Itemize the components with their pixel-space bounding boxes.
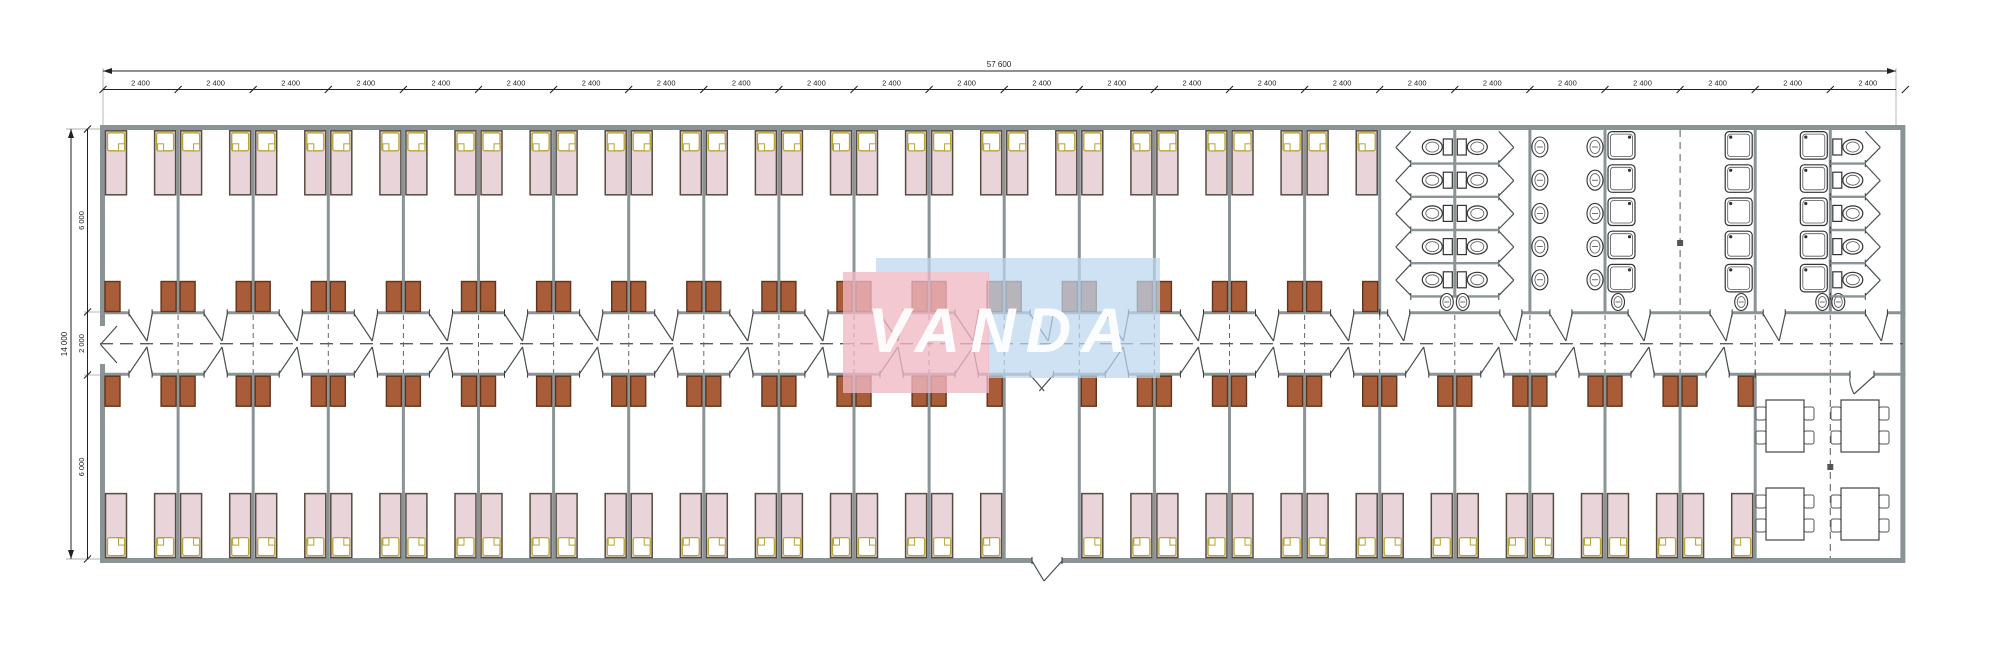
bed <box>1232 494 1253 558</box>
bed <box>406 131 427 195</box>
door-swing <box>147 347 152 374</box>
toilet-icon <box>1833 272 1863 288</box>
pillow-fold <box>1395 538 1401 545</box>
shower-head <box>1729 268 1732 271</box>
door-swing <box>1481 347 1499 374</box>
door-swing <box>147 314 152 341</box>
bed <box>605 131 626 195</box>
chair <box>1804 519 1814 532</box>
bed <box>1232 131 1253 195</box>
bed <box>1732 494 1753 558</box>
door-swing <box>129 347 147 374</box>
dim-label-segment: 2 400 <box>356 79 375 88</box>
door-swing <box>204 347 222 374</box>
shower-icon <box>1725 231 1752 259</box>
chair <box>1879 431 1889 444</box>
door-swing <box>1499 165 1514 181</box>
bed <box>932 494 953 558</box>
pillow-fold <box>794 144 800 151</box>
door-swing <box>279 314 297 341</box>
bed <box>631 494 652 558</box>
pillow-fold <box>1245 144 1251 151</box>
shower-head <box>1729 235 1732 238</box>
pillow-fold <box>308 144 314 151</box>
bed <box>1157 131 1178 195</box>
bed <box>706 494 727 558</box>
pillow-fold <box>909 538 915 545</box>
wardrobe <box>1232 282 1247 312</box>
wardrobe <box>1213 282 1228 312</box>
door-swing <box>1396 147 1411 162</box>
door-swing <box>297 314 302 341</box>
wardrobe <box>105 376 120 406</box>
bed <box>680 494 701 558</box>
bed <box>781 131 802 195</box>
dim-label-segment: 2 400 <box>582 79 601 88</box>
bed <box>1683 494 1704 558</box>
pillow-fold <box>1095 538 1101 545</box>
door-swing <box>1396 198 1411 214</box>
basin-icon <box>1816 294 1829 311</box>
pillow-fold <box>158 144 164 151</box>
pillow-fold <box>719 144 725 151</box>
door-swing <box>823 314 828 341</box>
bed <box>106 131 127 195</box>
shower-tray <box>1800 132 1827 160</box>
door-swing <box>1396 231 1411 247</box>
shower-tray <box>1725 165 1752 193</box>
bed <box>1206 494 1227 558</box>
bed <box>857 494 878 558</box>
wardrobe <box>481 376 496 406</box>
chair <box>1831 431 1841 444</box>
pillow-fold <box>909 144 915 151</box>
basin-icon <box>1587 237 1603 257</box>
wardrobe <box>706 376 721 406</box>
pillow-fold <box>1134 144 1140 151</box>
wc-tank <box>1457 172 1466 188</box>
basin-icon <box>1587 203 1603 223</box>
door-swing <box>1628 314 1644 341</box>
shower-tray <box>1608 264 1635 292</box>
door-swing <box>1706 347 1724 374</box>
pillow-fold <box>269 144 275 151</box>
door-swing <box>1556 347 1574 374</box>
dim-label-segment: 2 400 <box>1408 79 1427 88</box>
door-swing <box>1865 247 1880 262</box>
bed <box>1608 494 1629 558</box>
shower-icon <box>1608 132 1635 160</box>
wc-tank <box>1457 205 1466 221</box>
bed <box>1532 494 1553 558</box>
chair <box>1756 495 1766 508</box>
wc-tank <box>1457 239 1466 255</box>
bed <box>406 494 427 558</box>
shower-head <box>1628 235 1631 238</box>
door-swing <box>505 314 523 341</box>
bed <box>706 131 727 195</box>
wardrobe <box>687 282 702 312</box>
wardrobe <box>1438 376 1453 406</box>
dim-label-segment: 2 400 <box>882 79 901 88</box>
pillow-fold <box>1735 538 1741 545</box>
door-swing <box>222 314 227 341</box>
door-swing <box>1499 280 1514 295</box>
toilet-icon <box>1833 239 1863 255</box>
bed <box>155 494 176 558</box>
shower-head <box>1804 136 1807 139</box>
pillow-fold <box>1621 538 1627 545</box>
door-swing <box>279 347 297 374</box>
bed <box>981 494 1002 558</box>
pillow-fold <box>458 144 464 151</box>
door-swing <box>1499 147 1514 162</box>
door-swing <box>1854 376 1874 394</box>
bed <box>605 494 626 558</box>
door-swing <box>523 314 528 341</box>
wardrobe <box>537 282 552 312</box>
door-swing <box>1274 347 1279 374</box>
door-swing <box>1574 347 1579 374</box>
pillow-fold <box>1660 538 1666 545</box>
wardrobe <box>405 282 420 312</box>
wardrobe <box>161 282 176 312</box>
wc-tank <box>1833 172 1842 188</box>
door-swing <box>1331 347 1349 374</box>
wardrobe <box>330 282 345 312</box>
bed <box>455 494 476 558</box>
shower-head <box>1729 202 1732 205</box>
wardrobe <box>1307 376 1322 406</box>
pillow-fold <box>1209 538 1215 545</box>
door-swing <box>1331 314 1349 341</box>
door-swing <box>1180 314 1198 341</box>
dim-label-segment: 2 400 <box>807 79 826 88</box>
door-swing <box>1256 314 1274 341</box>
shower-icon <box>1608 264 1635 292</box>
basin-icon <box>1456 294 1469 311</box>
basin-icon <box>1532 203 1548 223</box>
pillow-fold <box>1359 538 1365 545</box>
pillow-fold <box>1134 538 1140 545</box>
shower-tray <box>1608 198 1635 226</box>
bed <box>481 131 502 195</box>
bed <box>906 494 927 558</box>
door-swing <box>730 314 748 341</box>
chair <box>1831 407 1841 420</box>
door-swing <box>354 347 372 374</box>
basin-icon <box>1612 294 1625 311</box>
shower-head <box>1804 202 1807 205</box>
shower-icon <box>1725 165 1752 193</box>
door-swing <box>1724 347 1729 374</box>
door-swing <box>1881 314 1887 341</box>
pillow-fold <box>834 144 840 151</box>
wardrobe <box>687 376 702 406</box>
dining-table <box>1831 488 1889 540</box>
bed <box>331 131 352 195</box>
pillow-fold <box>308 538 314 545</box>
wardrobe <box>781 376 796 406</box>
door-swing <box>101 345 118 364</box>
wardrobe <box>1738 376 1753 406</box>
wardrobe <box>612 282 627 312</box>
pillow-fold <box>1284 538 1290 545</box>
dim-label-segment: 2 400 <box>1258 79 1277 88</box>
door-swing <box>1865 314 1881 341</box>
door-swing <box>1406 347 1424 374</box>
bed <box>831 131 852 195</box>
door-swing <box>1865 131 1880 147</box>
door-swing <box>655 347 673 374</box>
wc-tank <box>1457 139 1466 155</box>
pillow-fold <box>1020 144 1026 151</box>
toilet-icon <box>1457 139 1487 155</box>
table-top <box>1841 488 1879 540</box>
door-swing <box>655 314 673 341</box>
bed <box>556 131 577 195</box>
door-swing <box>1865 280 1880 295</box>
dining-table <box>1756 400 1814 452</box>
wardrobe <box>1137 376 1152 406</box>
shower-icon <box>1725 264 1752 292</box>
floor-plan-canvas: 57 6002 4002 4002 4002 4002 4002 4002 40… <box>0 0 2000 654</box>
door-swing <box>1499 231 1514 247</box>
door-swing <box>1396 165 1411 181</box>
dining-table <box>1831 400 1889 452</box>
shower-tray <box>1800 231 1827 259</box>
bed <box>1281 131 1302 195</box>
pillow-fold <box>569 538 575 545</box>
floor-plan-drawing: 57 6002 4002 4002 4002 4002 4002 4002 40… <box>0 0 2000 654</box>
door-swing <box>1396 247 1411 262</box>
wc-tank <box>1833 239 1842 255</box>
door-swing <box>1396 131 1411 147</box>
wardrobe <box>386 376 401 406</box>
toilet-icon <box>1422 272 1452 288</box>
toilet-icon <box>1422 172 1452 188</box>
door-swing <box>1566 314 1572 341</box>
door-swing <box>1388 314 1404 341</box>
door-swing <box>1274 314 1279 341</box>
shower-icon <box>1608 231 1635 259</box>
shower-tray <box>1608 231 1635 259</box>
door-swing <box>1349 314 1354 341</box>
door-swing <box>598 347 603 374</box>
bed <box>857 131 878 195</box>
door-swing <box>1865 198 1880 214</box>
sanitary-fixtures <box>1411 132 1866 311</box>
dim-label-segment: 2 400 <box>507 79 526 88</box>
chair <box>1804 495 1814 508</box>
toilet-icon <box>1457 239 1487 255</box>
wc-tank <box>1443 139 1452 155</box>
bed <box>631 131 652 195</box>
wardrobe <box>161 376 176 406</box>
dim-label-segment: 2 400 <box>1483 79 1502 88</box>
door-swing <box>1649 347 1654 374</box>
basin-icon <box>1735 294 1748 311</box>
bed <box>380 494 401 558</box>
dim-label-segment: 2 400 <box>281 79 300 88</box>
door-swing <box>447 347 452 374</box>
toilet-icon <box>1457 272 1487 288</box>
bed <box>530 131 551 195</box>
table-top <box>1766 400 1804 452</box>
shower-tray <box>1800 264 1827 292</box>
basin-icon <box>1440 294 1453 311</box>
basin-icon <box>1587 170 1603 190</box>
door-swing <box>1424 347 1429 374</box>
bed <box>1082 131 1103 195</box>
wardrobe <box>987 376 1002 406</box>
toilet-icon <box>1422 139 1452 155</box>
bed <box>981 131 1002 195</box>
shower-tray <box>1800 165 1827 193</box>
bed <box>380 131 401 195</box>
dining-furniture <box>1756 400 1889 540</box>
door-swing <box>1779 314 1785 341</box>
basin-icon <box>1532 270 1548 290</box>
pillow-fold <box>683 144 689 151</box>
shower-head <box>1804 235 1807 238</box>
toilet-icon <box>1422 205 1452 221</box>
wardrobe <box>1363 282 1378 312</box>
divider-marker <box>1827 464 1833 470</box>
wardrobe <box>462 376 477 406</box>
watermark-text: VANDA <box>867 296 1136 366</box>
door-swing <box>730 347 748 374</box>
wc-tank <box>1443 205 1452 221</box>
wardrobe <box>1382 376 1397 406</box>
dim-label-overall-height: 14 000 <box>60 331 69 356</box>
table-top <box>1766 488 1804 540</box>
bed <box>256 494 277 558</box>
wardrobe <box>556 376 571 406</box>
toilet-icon <box>1422 239 1452 255</box>
door-swing <box>823 347 828 374</box>
shower-head <box>1628 136 1631 139</box>
door-swing <box>1044 561 1062 581</box>
pillow-fold <box>1059 144 1065 151</box>
dim-label-segment: 2 400 <box>1783 79 1802 88</box>
shower-head <box>1628 202 1631 205</box>
wardrobe <box>1588 376 1603 406</box>
pillow-fold <box>758 144 764 151</box>
bed <box>1307 131 1328 195</box>
dim-arrow <box>68 550 74 559</box>
wardrobe <box>1682 376 1697 406</box>
wc-tank <box>1457 272 1466 288</box>
door-swing <box>523 347 528 374</box>
pillow-fold <box>158 538 164 545</box>
door-swing <box>297 347 302 374</box>
shower-head <box>1729 169 1732 172</box>
pillow-fold <box>1170 538 1176 545</box>
bed <box>331 494 352 558</box>
pillow-fold <box>533 144 539 151</box>
door-swing <box>429 314 447 341</box>
door-swing <box>1499 181 1514 196</box>
wardrobe <box>236 376 251 406</box>
wardrobe <box>1363 376 1378 406</box>
pillow-fold <box>383 144 389 151</box>
dim-label-overall-width: 57 600 <box>987 60 1012 69</box>
bed <box>932 131 953 195</box>
door-swing <box>1499 198 1514 214</box>
pillow-fold <box>1545 538 1551 545</box>
dim-arrow <box>68 129 74 138</box>
bed <box>1506 494 1527 558</box>
bed <box>305 131 326 195</box>
shower-icon <box>1725 198 1752 226</box>
toilet-icon <box>1833 172 1863 188</box>
pillow-fold <box>119 538 125 545</box>
shower-icon <box>1608 165 1635 193</box>
toilet-icon <box>1457 205 1487 221</box>
wardrobe <box>311 376 326 406</box>
toilet-icon <box>1833 205 1863 221</box>
pillow-fold <box>233 144 239 151</box>
door-swing <box>1710 314 1726 341</box>
door-swing <box>1499 214 1514 229</box>
wc-tank <box>1833 139 1842 155</box>
pillow-fold <box>119 144 125 151</box>
chair <box>1756 431 1766 444</box>
wardrobe <box>236 282 251 312</box>
door-swing <box>1349 347 1354 374</box>
door-swing <box>1499 347 1504 374</box>
pillow-fold <box>1359 144 1365 151</box>
pillow-fold <box>419 144 425 151</box>
door-swing <box>580 314 598 341</box>
wardrobe <box>706 282 721 312</box>
bed <box>181 131 202 195</box>
pillow-fold <box>1245 538 1251 545</box>
pillow-fold <box>758 538 764 545</box>
pillow-fold <box>1095 144 1101 151</box>
door-swing <box>447 314 452 341</box>
door-swing <box>1865 181 1880 196</box>
bed <box>1582 494 1603 558</box>
pillow-fold <box>344 144 350 151</box>
pillow-fold <box>1284 144 1290 151</box>
pillow-fold <box>644 538 650 545</box>
basin-icon <box>1587 137 1603 157</box>
door-swing <box>505 347 523 374</box>
door-swing <box>1865 264 1880 280</box>
door-swing <box>1499 264 1514 280</box>
chair <box>1804 431 1814 444</box>
door-swing <box>204 314 222 341</box>
dim-arrow <box>1887 68 1896 74</box>
watermark: VANDA <box>843 258 1160 393</box>
shower-icon <box>1800 165 1827 193</box>
bed <box>1281 494 1302 558</box>
bed <box>155 131 176 195</box>
bed <box>755 494 776 558</box>
dim-label-segment: 2 400 <box>732 79 751 88</box>
wardrobe <box>631 282 646 312</box>
door-swing-arc <box>1850 376 1854 394</box>
pillow-fold <box>383 538 389 545</box>
bed <box>1356 494 1377 558</box>
door-swing <box>1198 314 1203 341</box>
dim-label-segment: 2 400 <box>131 79 150 88</box>
wardrobe <box>105 282 120 312</box>
dim-label-segment: 2 400 <box>1708 79 1727 88</box>
pillow-fold <box>494 538 500 545</box>
